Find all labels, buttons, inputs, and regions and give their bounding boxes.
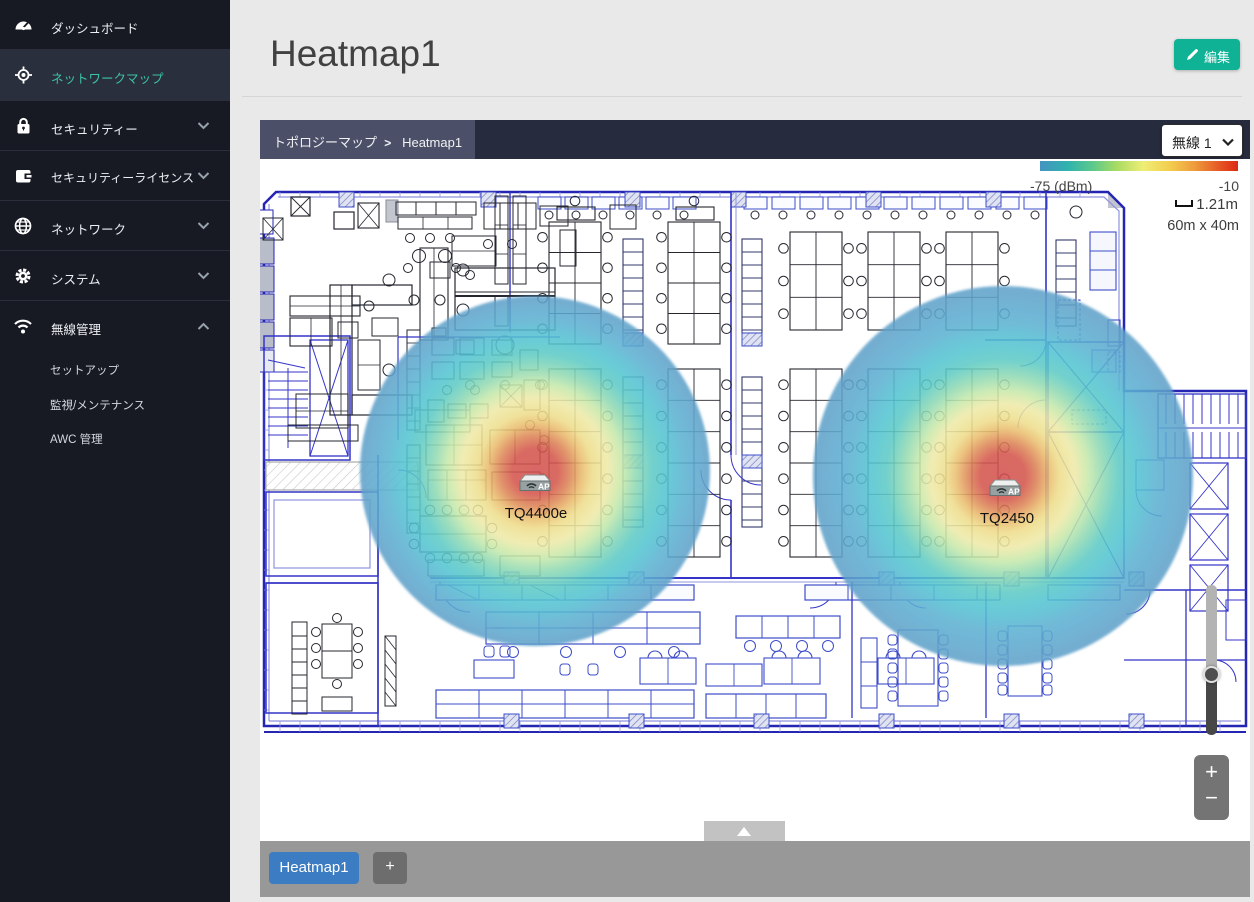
svg-text:TQ4400e: TQ4400e <box>505 505 568 522</box>
svg-text:TQ2450: TQ2450 <box>980 510 1034 527</box>
svg-text:AP: AP <box>538 482 550 492</box>
svg-text:AP: AP <box>1008 487 1020 497</box>
